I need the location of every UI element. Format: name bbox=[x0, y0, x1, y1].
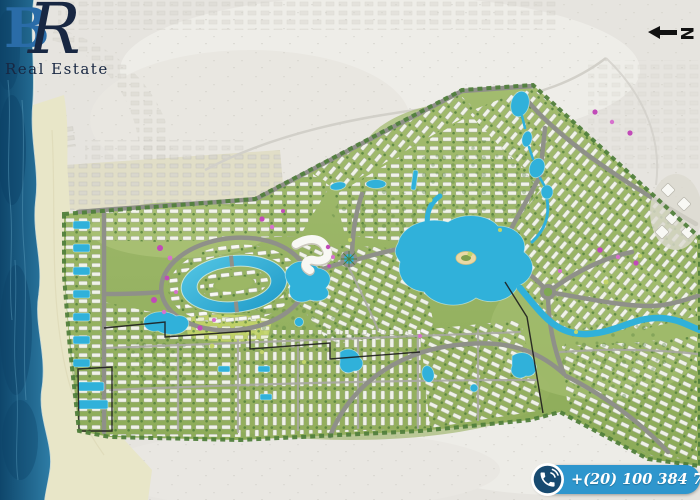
masterplan-map: N bbox=[0, 0, 700, 500]
roundabout-west bbox=[341, 251, 358, 268]
phone-icon bbox=[529, 461, 566, 498]
roundabout-east bbox=[540, 284, 556, 300]
masterplan-screenshot: N B R Real Estate +(20) 100 384 7187 bbox=[0, 0, 700, 500]
contact-phone-button[interactable]: +(20) 100 384 7187 bbox=[533, 465, 700, 494]
event-tents bbox=[650, 174, 700, 250]
phone-number: +(20) 100 384 7187 bbox=[571, 465, 700, 494]
north-label: N bbox=[676, 26, 696, 40]
